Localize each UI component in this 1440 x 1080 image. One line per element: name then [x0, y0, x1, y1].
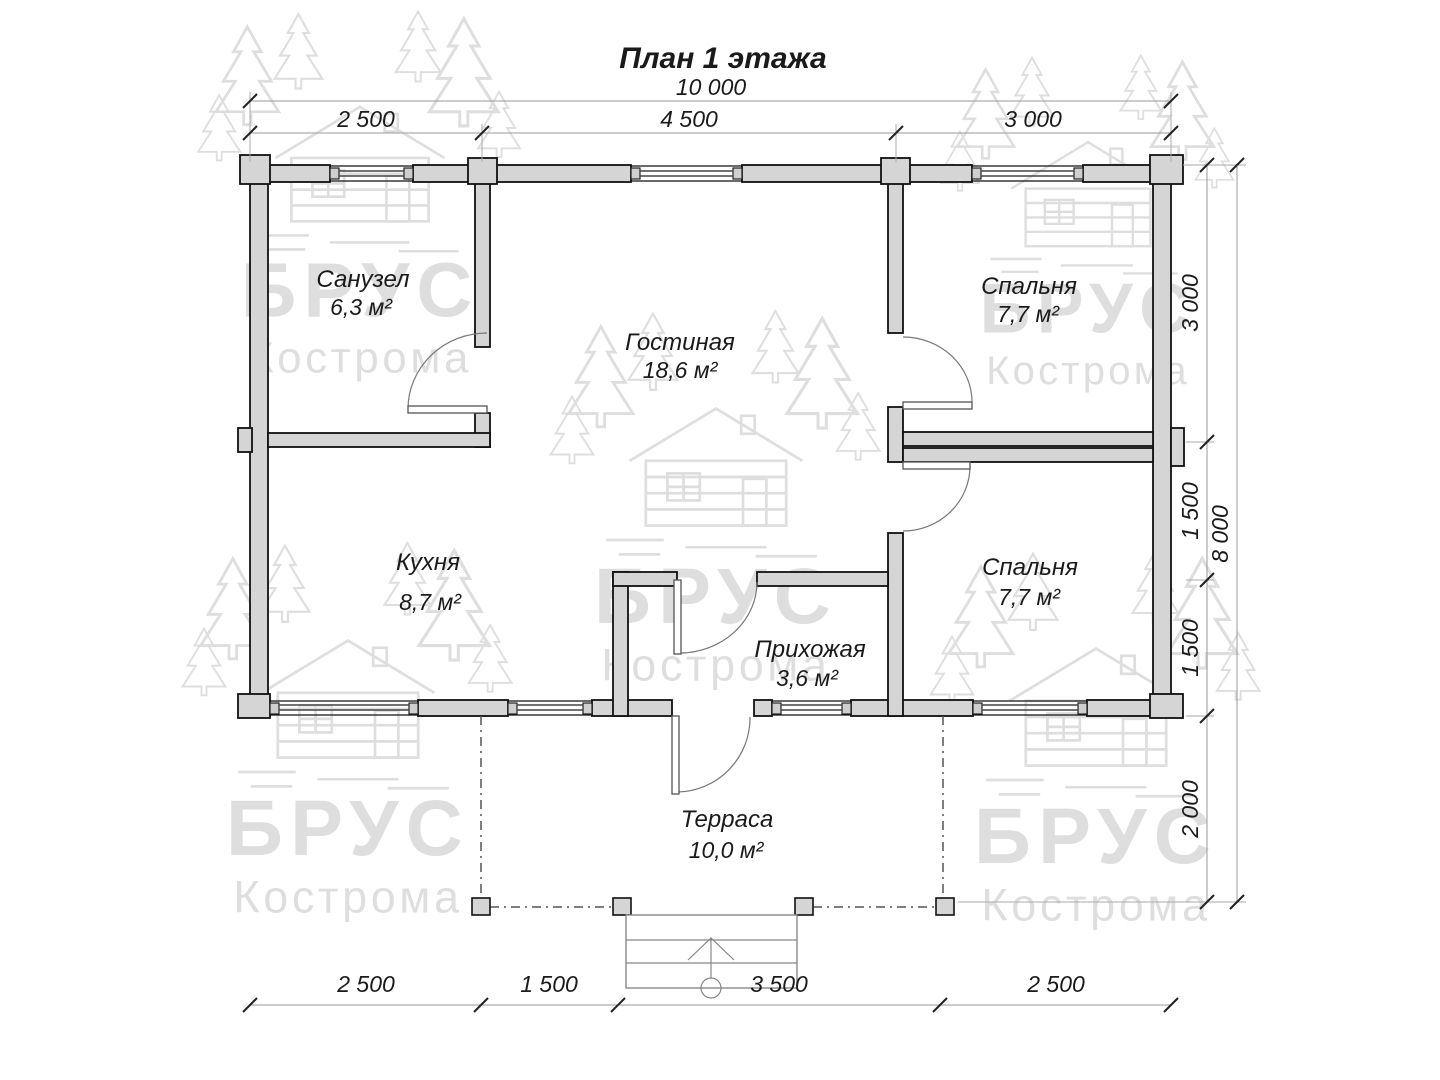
door-entrance [672, 716, 750, 794]
wall-hallway-left [613, 572, 628, 716]
wall-bottom-5 [851, 700, 973, 716]
dim-right-seg-2: 1 500 [1177, 482, 1203, 540]
room-area-hallway: 3,6 м² [776, 665, 839, 691]
room-area-terrace: 10,0 м² [689, 837, 765, 863]
window-hallway [772, 701, 851, 715]
window-kitchen-2 [508, 701, 592, 715]
wall-bottom-3 [592, 700, 672, 716]
wall-bathroom-bottom [268, 433, 490, 447]
wall-hallway-top-2 [757, 572, 888, 586]
terrace-post-3 [795, 898, 813, 915]
room-label-kitchen: Кухня [396, 549, 460, 576]
wall-bottom-2 [418, 700, 508, 716]
corner-block-bottom-left [238, 694, 270, 718]
room-label-living: Гостиная [625, 329, 735, 356]
dim-right-seg-1: 3 000 [1177, 274, 1203, 332]
dim-right-seg-4: 2 000 [1177, 780, 1203, 839]
dim-bottom-seg-3: 3 500 [750, 971, 808, 997]
wall-bathroom-right [475, 182, 490, 347]
door-bedroom1 [903, 337, 972, 409]
room-area-kitchen: 8,7 м² [399, 589, 462, 615]
terrace-post-1 [472, 898, 490, 915]
wall-hallway-top-1 [613, 572, 677, 586]
watermark-layer [183, 11, 1260, 930]
dim-top-seg-1: 2 500 [336, 106, 395, 132]
room-label-bathroom: Санузел [316, 266, 410, 293]
room-area-bedroom2: 7,7 м² [998, 584, 1061, 610]
corner-block-bottom-right [1150, 694, 1183, 718]
room-area-bedroom1: 7,7 м² [997, 301, 1060, 327]
wall-top-3 [742, 165, 972, 182]
door-bedroom2 [903, 462, 970, 531]
room-label-terrace: Терраса [681, 806, 774, 833]
wall-living-bedroom1 [888, 182, 903, 333]
wall-bedroom1-bottom [903, 432, 1153, 446]
dim-top-seg-2: 4 500 [660, 106, 718, 132]
room-area-living: 18,6 м² [643, 357, 719, 383]
dim-bottom-seg-1: 2 500 [336, 971, 395, 997]
page-title: План 1 этажа [619, 42, 826, 75]
dim-bottom-seg-4: 2 500 [1026, 971, 1085, 997]
dim-right-total: 8 000 [1207, 505, 1233, 563]
floor-plan-page: БРУС Кострома [0, 0, 1440, 1080]
junction-block-left [238, 428, 252, 452]
room-label-hallway: Прихожая [754, 636, 865, 663]
room-area-bathroom: 6,3 м² [330, 294, 393, 320]
dim-top-seg-3: 3 000 [1004, 106, 1062, 132]
window-living [631, 166, 742, 181]
dim-top-total: 10 000 [676, 74, 747, 100]
terrace-post-4 [936, 898, 954, 915]
corner-block-top-left [240, 155, 270, 184]
terrace-post-2 [613, 898, 631, 915]
floor-plan-canvas: БРУС Кострома [0, 0, 1440, 1080]
dim-right-seg-3: 1 500 [1177, 619, 1203, 677]
wall-bedroom2-top [903, 448, 1153, 462]
junction-block-right [1171, 428, 1184, 466]
wall-right [1153, 165, 1171, 716]
wall-hallway-right [888, 533, 903, 716]
room-label-bedroom1: Спальня [981, 273, 1077, 300]
wall-top-2 [413, 165, 631, 182]
wall-living-bedroom-stub [888, 407, 903, 462]
dim-bottom-seg-2: 1 500 [520, 971, 578, 997]
corner-block-top-right [1150, 155, 1183, 184]
wall-bottom-4 [754, 700, 772, 716]
room-label-bedroom2: Спальня [982, 554, 1078, 581]
